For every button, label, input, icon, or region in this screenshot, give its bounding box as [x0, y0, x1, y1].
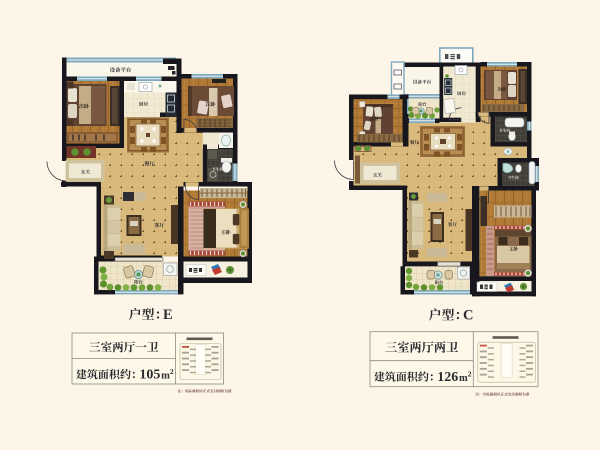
svg-text:C: C — [463, 308, 473, 324]
svg-text:105: 105 — [139, 368, 160, 383]
svg-text:126: 126 — [437, 370, 458, 385]
svg-text:E: E — [163, 307, 173, 323]
